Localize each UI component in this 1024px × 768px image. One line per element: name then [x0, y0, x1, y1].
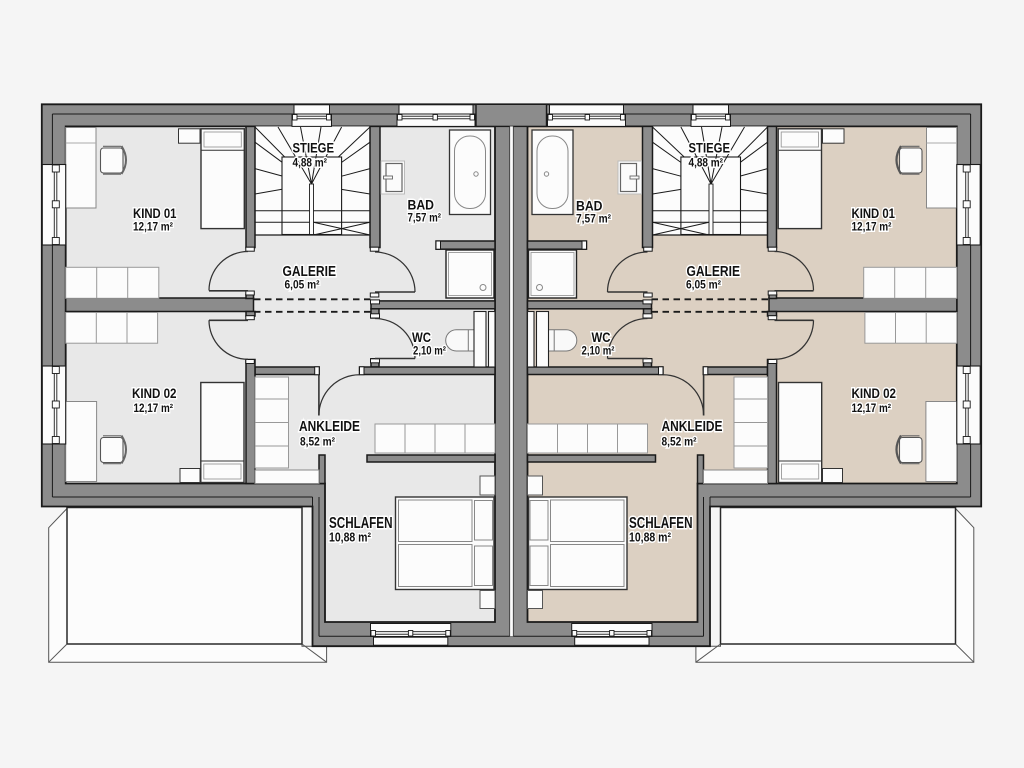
svg-text:2,10 m²: 2,10 m² — [582, 343, 615, 357]
svg-text:2,10 m²: 2,10 m² — [413, 343, 446, 357]
svg-text:12,17 m²: 12,17 m² — [852, 401, 892, 415]
svg-text:STIEGE: STIEGE — [293, 139, 335, 155]
svg-text:8,52 m²: 8,52 m² — [662, 435, 697, 449]
svg-text:12,17 m²: 12,17 m² — [852, 220, 892, 234]
svg-text:ANKLEIDE: ANKLEIDE — [299, 419, 360, 435]
svg-text:7,57 m²: 7,57 m² — [408, 211, 442, 225]
svg-text:KIND 02: KIND 02 — [132, 385, 177, 401]
svg-text:6,05 m²: 6,05 m² — [686, 278, 721, 292]
svg-text:ANKLEIDE: ANKLEIDE — [662, 419, 723, 435]
svg-text:KIND 02: KIND 02 — [852, 385, 897, 401]
svg-text:12,17 m²: 12,17 m² — [134, 401, 174, 415]
svg-text:12,17 m²: 12,17 m² — [133, 220, 173, 234]
svg-text:7,57 m²: 7,57 m² — [576, 212, 611, 226]
svg-text:6,05 m²: 6,05 m² — [285, 278, 320, 292]
svg-text:4,88 m²: 4,88 m² — [689, 156, 724, 170]
svg-text:8,52 m²: 8,52 m² — [300, 435, 335, 449]
svg-text:10,88 m²: 10,88 m² — [329, 530, 371, 545]
svg-text:4,88 m²: 4,88 m² — [293, 156, 328, 170]
svg-text:STIEGE: STIEGE — [689, 139, 731, 155]
svg-text:10,88 m²: 10,88 m² — [629, 530, 671, 545]
